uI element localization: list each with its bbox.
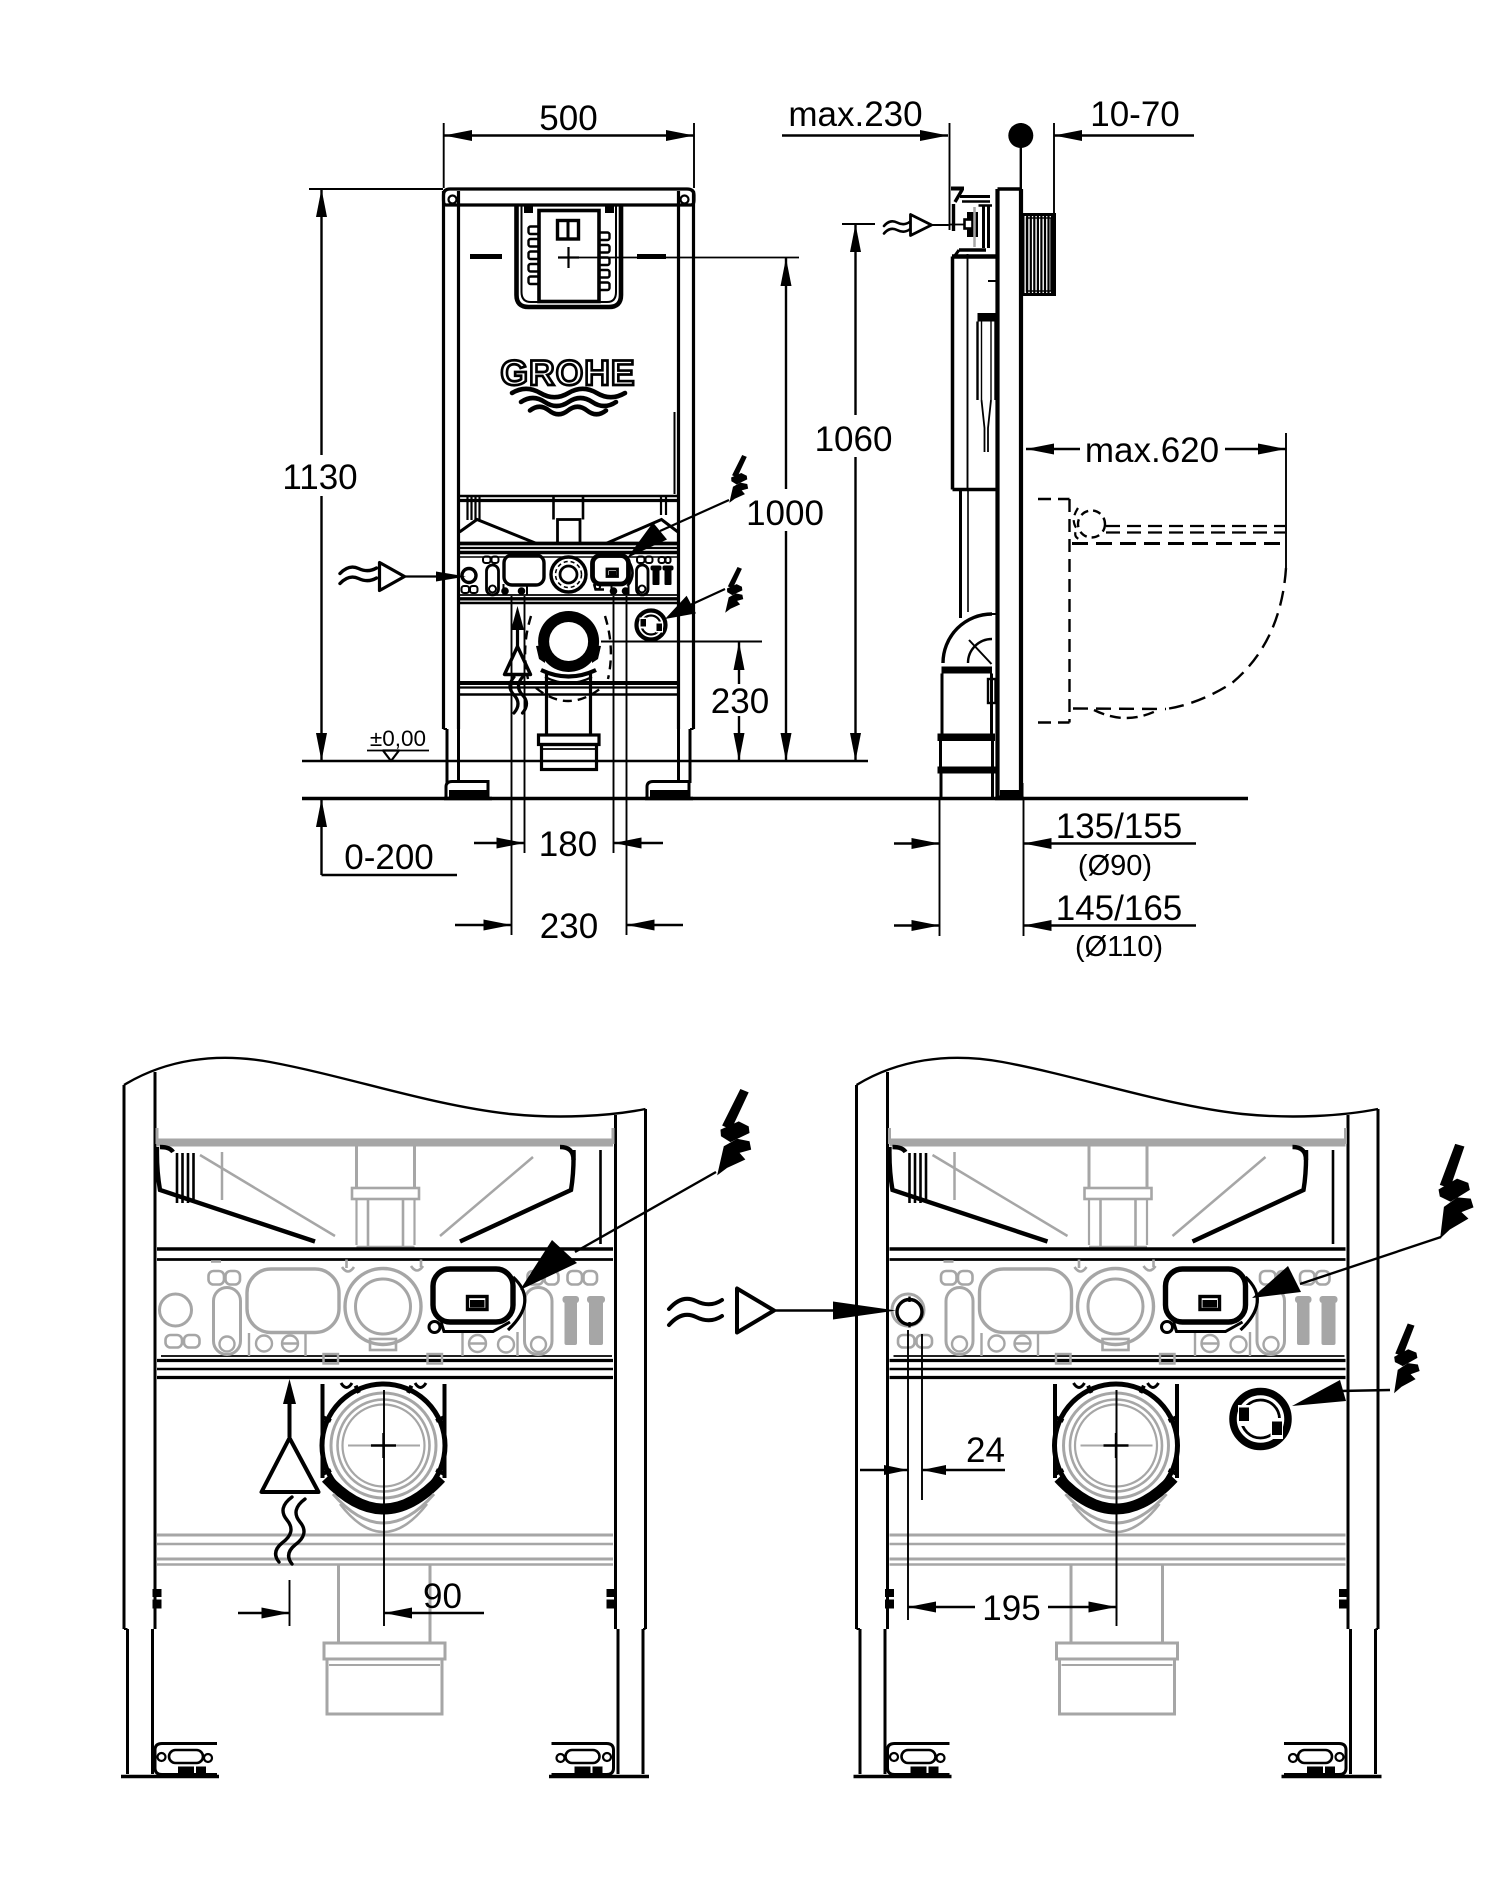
svg-text:(Ø90): (Ø90) <box>1078 850 1152 882</box>
svg-text:180: 180 <box>539 825 597 864</box>
svg-text:195: 195 <box>982 1589 1040 1628</box>
svg-text:max.620: max.620 <box>1085 431 1219 470</box>
svg-text:10-70: 10-70 <box>1090 95 1180 134</box>
svg-text:1060: 1060 <box>815 420 893 459</box>
svg-text:135/155: 135/155 <box>1056 807 1183 846</box>
svg-text:GROHE: GROHE <box>500 353 635 393</box>
svg-text:145/165: 145/165 <box>1056 889 1183 928</box>
svg-text:max.230: max.230 <box>788 95 922 134</box>
svg-text:230: 230 <box>711 682 769 721</box>
svg-text:230: 230 <box>540 907 598 946</box>
svg-text:500: 500 <box>539 99 597 138</box>
svg-text:24: 24 <box>966 1431 1005 1470</box>
svg-text:(Ø110): (Ø110) <box>1075 931 1163 963</box>
svg-text:0-200: 0-200 <box>344 838 434 877</box>
svg-text:1000: 1000 <box>746 494 824 533</box>
svg-text:±0,00: ±0,00 <box>370 726 426 751</box>
svg-text:90: 90 <box>423 1577 462 1616</box>
svg-text:1130: 1130 <box>282 458 357 497</box>
